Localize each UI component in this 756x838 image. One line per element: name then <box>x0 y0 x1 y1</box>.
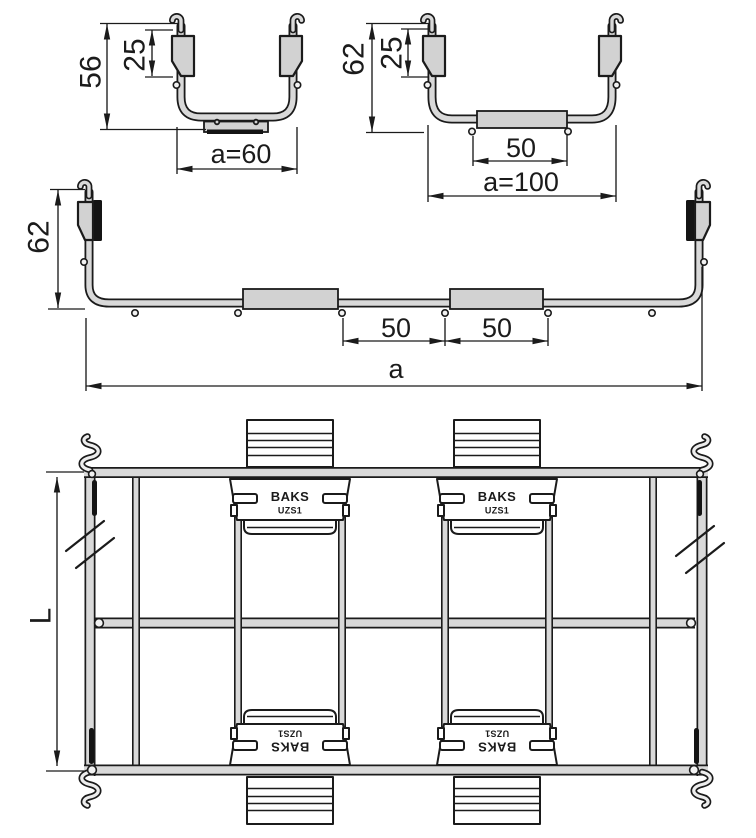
weld-dot <box>294 82 300 88</box>
weld-seam <box>89 728 94 764</box>
mounting-clamp-top: BAKS UZS1 <box>437 479 557 534</box>
weld-dot <box>81 259 87 265</box>
clamp-edge-dark <box>93 200 102 241</box>
dim-spacing-50: 50 <box>482 313 512 343</box>
side-clamp-plate <box>695 202 710 240</box>
cable-tray-drawing: 56 25 a=60 62 25 50 <box>0 0 756 838</box>
cross-section-a60: 56 25 a=60 <box>75 16 303 174</box>
clamp-model-text: UZS1 <box>278 506 302 516</box>
dim-width-a: a <box>388 354 404 384</box>
side-clamp-plate <box>78 202 93 240</box>
dim-plate-50: 50 <box>506 133 536 163</box>
dim-height-62: 62 <box>23 220 56 253</box>
bottom-plate <box>450 289 543 309</box>
clamp-brand-text: BAKS <box>478 489 516 504</box>
connector-block <box>454 777 540 824</box>
connector-block <box>247 777 333 824</box>
dim-length-L: L <box>25 608 58 625</box>
side-clamp-plate <box>172 36 194 76</box>
mounting-clamp-bottom: BAKS UZS1 <box>230 710 350 765</box>
plan-view: BAKS UZS1 BAKS UZS1 BAKS UZS1 <box>25 420 725 824</box>
clamp-brand-text: BAKS <box>478 739 516 754</box>
mounting-clamp-bottom: BAKS UZS1 <box>437 710 557 765</box>
dim-clamp-25: 25 <box>376 36 409 69</box>
clamp-brand-text: BAKS <box>271 739 309 754</box>
side-clamp-plate <box>599 36 621 76</box>
cross-section-wide: 62 50 50 a <box>23 182 711 391</box>
weld-seam <box>694 728 699 764</box>
dim-width-a60: a=60 <box>211 139 272 169</box>
weld-dot <box>424 82 430 88</box>
weld-dot <box>173 82 179 88</box>
weld-dot <box>613 82 619 88</box>
mounting-clamp-top: BAKS UZS1 <box>230 479 350 534</box>
dim-spacing-50: 50 <box>381 313 411 343</box>
clamp-model-text: UZS1 <box>485 506 509 516</box>
technical-drawing-page: 56 25 a=60 62 25 50 <box>0 0 756 838</box>
weld-dot <box>565 128 571 134</box>
bottom-plate <box>477 111 567 128</box>
weld-seam <box>697 480 702 516</box>
dim-height-56: 56 <box>75 55 108 88</box>
dim-width-a100: a=100 <box>483 167 559 197</box>
cross-section-a100: 62 25 50 a=100 <box>338 16 622 202</box>
clamp-model-text: UZS1 <box>278 728 302 738</box>
dim-clamp-25: 25 <box>119 38 152 71</box>
bottom-weld-bar <box>207 130 263 135</box>
dim-height-62: 62 <box>338 42 371 75</box>
connector-block <box>247 420 333 467</box>
clamp-model-text: UZS1 <box>485 728 509 738</box>
connector-block <box>454 420 540 467</box>
bottom-plate <box>243 289 338 309</box>
clamp-brand-text: BAKS <box>271 489 309 504</box>
weld-seam <box>92 480 97 516</box>
clamp-edge-dark <box>686 200 695 241</box>
side-clamp-plate <box>423 36 445 76</box>
side-clamp-plate <box>280 36 302 76</box>
break-mark <box>66 521 724 573</box>
weld-dot <box>701 259 707 265</box>
weld-dot <box>469 128 475 134</box>
